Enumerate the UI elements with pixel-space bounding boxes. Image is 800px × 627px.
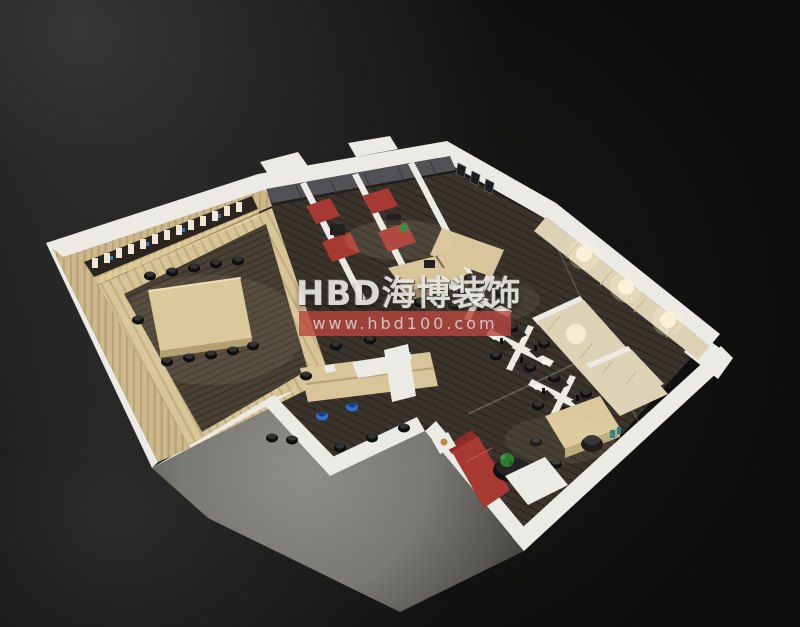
watermark-url-text: www.hbd100.com <box>312 314 497 333</box>
coffee-table <box>330 224 345 235</box>
conference-table <box>148 277 252 351</box>
watermark-red-band: www.hbd100.com <box>299 311 511 336</box>
plant <box>500 453 514 467</box>
office-render-image: HBD海博装饰 www.hbd100.com <box>0 0 800 627</box>
watermark-brand-text: HBD海博装饰 <box>296 277 526 311</box>
